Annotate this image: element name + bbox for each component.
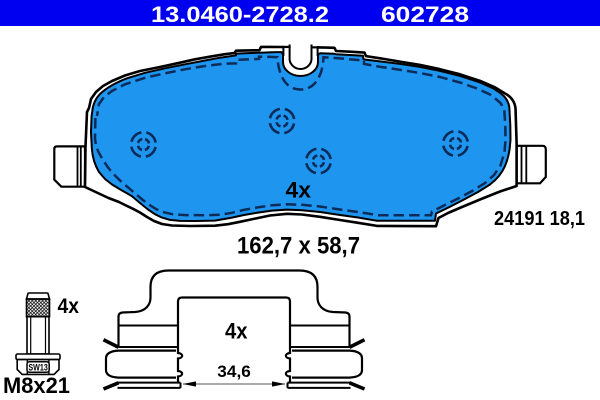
svg-text:4x: 4x — [58, 295, 80, 318]
svg-text:13.0460-2728.2: 13.0460-2728.2 — [151, 2, 329, 27]
svg-text:24191 18,1: 24191 18,1 — [494, 207, 585, 230]
svg-text:162,7 x 58,7: 162,7 x 58,7 — [237, 233, 360, 260]
svg-text:602728: 602728 — [381, 2, 469, 27]
svg-text:M8x21: M8x21 — [3, 373, 70, 398]
svg-text:4x: 4x — [286, 177, 312, 202]
svg-text:4x: 4x — [225, 319, 248, 344]
svg-text:SW13: SW13 — [28, 362, 47, 372]
svg-text:34,6: 34,6 — [217, 362, 251, 381]
